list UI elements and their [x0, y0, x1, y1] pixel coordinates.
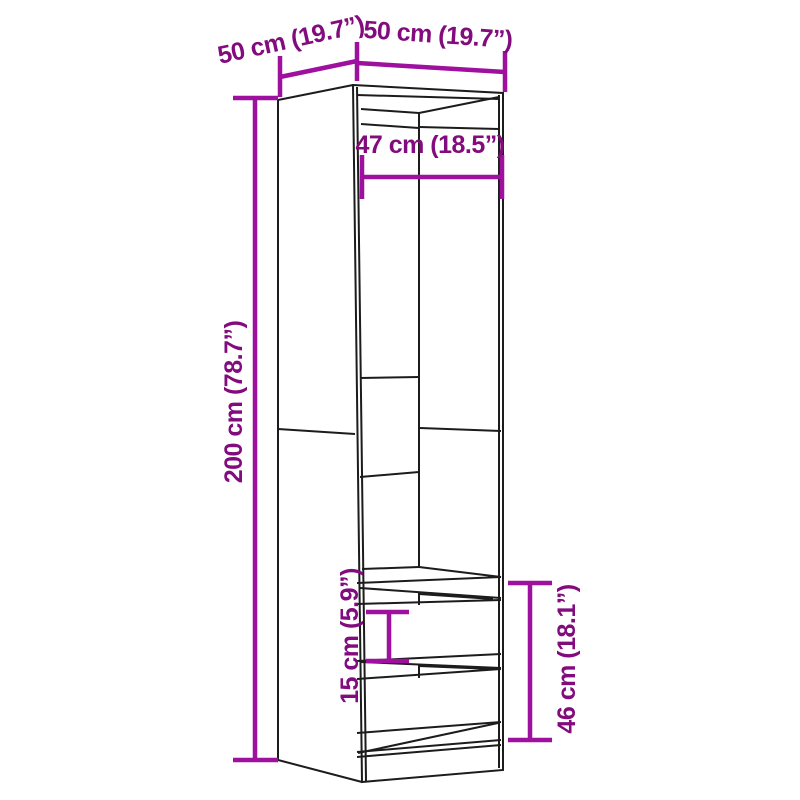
top-rail-bottom: [357, 95, 499, 99]
right-wall-top-edge: [419, 127, 499, 129]
seam-top-edge: [360, 377, 419, 378]
diagram-page: 50 cm (19.7”) 50 cm (19.7”) 47 cm (18.5”…: [0, 0, 800, 800]
drawer-height-dim-label: 15 cm (5.9”): [336, 568, 364, 704]
back-seam-panel: [360, 377, 501, 477]
wardrobe-drawing: [278, 85, 503, 782]
dimension-lower-section: 46 cm (18.1”): [508, 583, 581, 740]
top-interior: [357, 95, 499, 568]
left-panel-joint-line: [278, 429, 355, 434]
drawer1-opening-top: [360, 588, 501, 598]
width-dim-line: [357, 63, 505, 72]
drawer1-front-top-edge: [357, 600, 501, 604]
shelf-right-diagonal: [419, 567, 501, 577]
wardrobe-dimension-diagram: 50 cm (19.7”) 50 cm (19.7”) 47 cm (18.5”…: [0, 0, 800, 800]
drawer-1: [357, 588, 501, 661]
top-panel-front-underside: [361, 109, 419, 113]
back-wall-top-edge: [361, 124, 419, 128]
right-wall-joint-line: [420, 428, 501, 431]
lower-section-dim-label: 46 cm (18.1”): [553, 584, 581, 733]
drawer-2: [357, 662, 501, 733]
depth-dim-label: 50 cm (19.7”): [215, 10, 367, 70]
left-panel-top-edge: [278, 85, 353, 100]
depth-dim-line: [280, 61, 357, 77]
left-panel-bottom-edge: [278, 760, 362, 782]
dimension-height: 200 cm (78.7”): [220, 98, 278, 760]
dimension-depth-top: 50 cm (19.7”): [215, 10, 367, 97]
width-dim-label: 50 cm (19.7”): [363, 16, 514, 54]
seam-bottom-edge: [360, 472, 419, 477]
shelf-back-edge: [362, 567, 419, 569]
shelf: [357, 567, 501, 583]
top-panel-diagonal: [419, 97, 499, 113]
dimension-width-top: 50 cm (19.7”): [357, 16, 514, 92]
dimension-inner-width: 47 cm (18.5”): [355, 131, 504, 199]
drawer2-front-top-edge: [357, 669, 501, 679]
inner-width-dim-label: 47 cm (18.5”): [355, 131, 504, 159]
height-dim-label: 200 cm (78.7”): [220, 321, 248, 484]
shelf-front-edge: [357, 577, 501, 583]
